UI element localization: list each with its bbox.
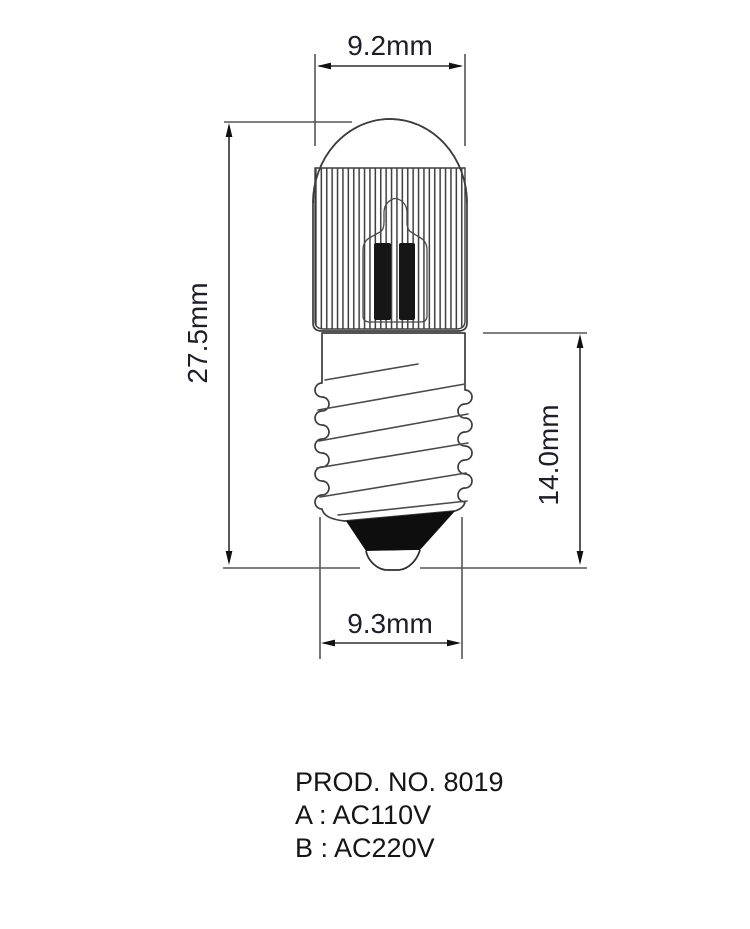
lamp-spec-drawing-page: 9.2mm 27.5mm 14.0mm 9.3mm <box>0 0 750 929</box>
product-number-text: PROD. NO. 8019 <box>295 767 504 797</box>
dimension-base-height: 14.0mm <box>533 334 583 565</box>
lamp-bulb-drawing <box>313 119 472 570</box>
dim-label-overall-height: 27.5mm <box>182 282 213 383</box>
electrode-right <box>399 243 415 320</box>
arrowhead-right <box>447 640 461 647</box>
electrode-left <box>374 243 391 320</box>
variant-a-text: A : AC110V <box>295 800 431 830</box>
arrowhead-left <box>317 63 331 70</box>
dim-label-base-height: 14.0mm <box>533 404 564 505</box>
dim-label-base-diameter: 9.3mm <box>347 608 433 639</box>
technical-drawing-svg: 9.2mm 27.5mm 14.0mm 9.3mm <box>0 0 750 929</box>
dimension-bulb-diameter: 9.2mm <box>317 30 463 69</box>
arrowhead-right <box>449 63 463 70</box>
arrowhead-up <box>577 334 584 348</box>
arrowhead-down <box>226 551 233 565</box>
arrowhead-left <box>321 640 335 647</box>
variant-b-text: B : AC220V <box>295 833 435 863</box>
dimension-overall-height: 27.5mm <box>182 123 232 565</box>
product-info-block: PROD. NO. 8019 A : AC110V B : AC220V <box>295 767 504 863</box>
dimension-base-diameter: 9.3mm <box>321 608 461 646</box>
arrowhead-down <box>577 551 584 565</box>
contact-tip <box>366 550 420 570</box>
arrowhead-up <box>226 123 233 137</box>
dim-label-bulb-diameter: 9.2mm <box>347 30 433 61</box>
